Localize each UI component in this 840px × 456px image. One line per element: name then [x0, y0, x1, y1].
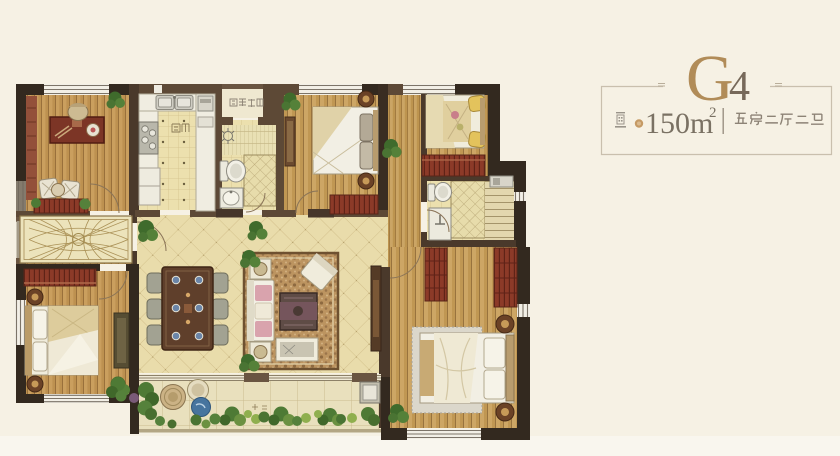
svg-text:150m: 150m — [645, 107, 713, 140]
svg-text:2: 2 — [709, 105, 717, 121]
svg-text:4: 4 — [729, 64, 750, 110]
